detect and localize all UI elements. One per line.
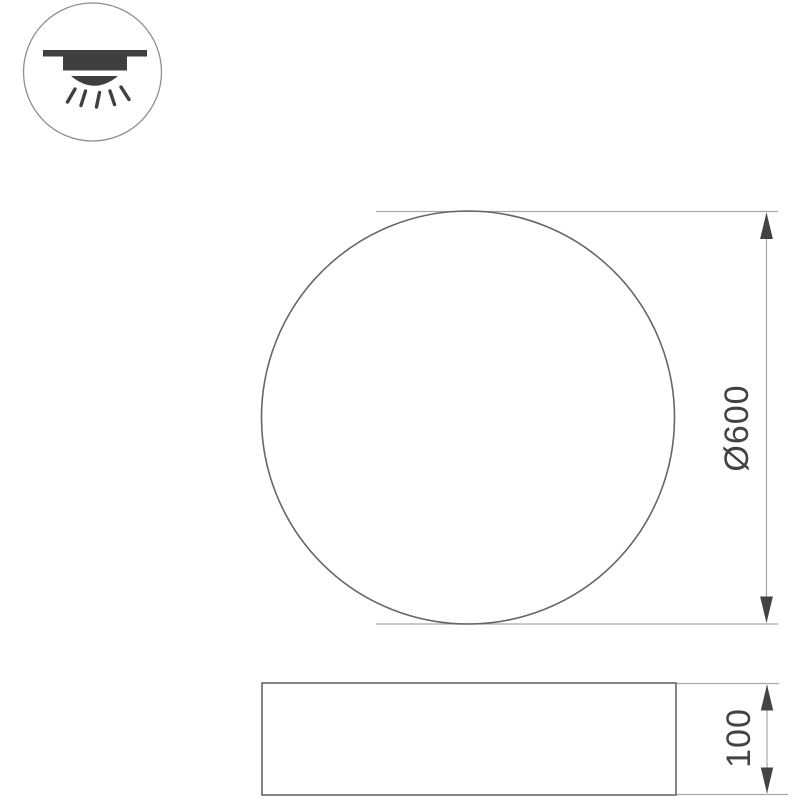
icon-fixture-body: [63, 50, 127, 71]
height-arrow-up: [761, 685, 773, 711]
diameter-arrow-up: [760, 213, 773, 240]
technical-drawing-page: Ø600 100: [0, 0, 800, 800]
dimension-labels: Ø600 100: [718, 384, 758, 767]
ceiling-light-icon: [24, 3, 162, 141]
lamp-side-view-rectangle: [262, 683, 676, 795]
lamp-dimension-drawing: Ø600 100: [0, 0, 800, 800]
diameter-arrow-down: [760, 597, 773, 624]
lamp-top-view-circle: [262, 211, 675, 624]
height-arrow-down: [761, 768, 773, 794]
height-label: 100: [720, 708, 758, 768]
product-outlines: [262, 211, 677, 795]
diameter-label: Ø600: [718, 384, 756, 471]
icon-ring: [24, 3, 162, 141]
